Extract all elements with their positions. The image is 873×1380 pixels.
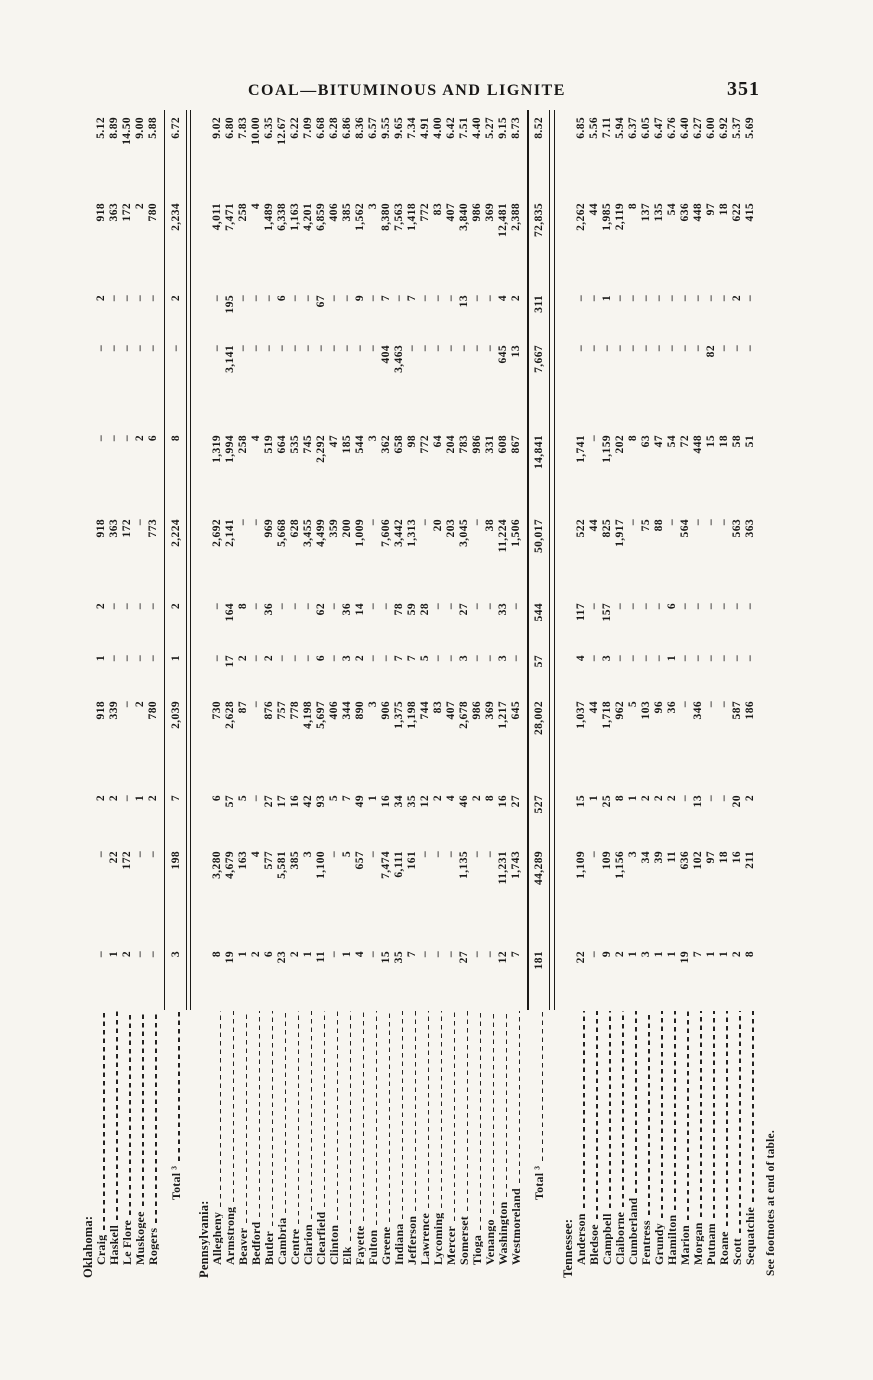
cell: – (276, 648, 288, 694)
cell: 2,141 (224, 512, 236, 596)
cell: – (679, 648, 691, 694)
cell: 102 (692, 844, 704, 944)
row-stub: Butler (263, 1008, 275, 1278)
table-row: Muskogee––12–––2––29.00 (133, 106, 146, 1278)
cell: 780 (147, 196, 159, 288)
cell: – (276, 596, 288, 648)
cell: – (484, 596, 496, 648)
cell: 137 (640, 196, 652, 288)
cell: 34 (393, 788, 405, 844)
cell: – (121, 694, 133, 788)
cell: 4 (250, 196, 262, 288)
cell: 1,506 (510, 512, 522, 596)
cell: 25 (601, 788, 613, 844)
table-row: Anderson221,109151,03741175221,741––2,26… (574, 106, 587, 1278)
leader-line (142, 1011, 144, 1206)
leader-line (467, 1011, 469, 1211)
cell: 9.55 (380, 110, 392, 196)
cell: 4.40 (471, 110, 483, 196)
cell: – (419, 512, 431, 596)
cell: 645 (497, 338, 509, 428)
cell: 50,017 (533, 512, 545, 596)
cell: 346 (692, 694, 704, 788)
cell: – (666, 288, 678, 338)
cell: 164 (224, 596, 236, 648)
cell: 19 (679, 944, 691, 1008)
cell: 918 (95, 196, 107, 288)
cell: 6.68 (315, 110, 327, 196)
cell: 103 (640, 694, 652, 788)
cell: 2 (289, 944, 301, 1008)
cell: 1,743 (510, 844, 522, 944)
table-row: Fayette4657498902141,009544–91,5628.36 (353, 106, 366, 1278)
cell: – (679, 694, 691, 788)
row-stub: Haskell (108, 1008, 120, 1278)
table-row: Armstrong194,679572,628171642,1411,9943,… (223, 106, 236, 1278)
cell: – (380, 596, 392, 648)
cell: 407 (445, 196, 457, 288)
cell: – (211, 288, 223, 338)
cell: – (718, 694, 730, 788)
cell: 35 (406, 788, 418, 844)
cell: 3 (170, 944, 182, 1008)
cell: 3 (458, 648, 470, 694)
cell: 744 (419, 694, 431, 788)
cell: 8 (170, 428, 182, 512)
cell: 27 (263, 788, 275, 844)
cell: 198 (170, 844, 182, 944)
cell: 7 (406, 648, 418, 694)
cell: 11 (666, 844, 678, 944)
table-row: Westmoreland71,74327645––1,5068671322,38… (509, 106, 522, 1278)
row-stub: Fayette (354, 1008, 366, 1278)
cell: – (108, 596, 120, 648)
cell: 87 (237, 694, 249, 788)
row-label: Claiborne (614, 1212, 626, 1278)
cell: 563 (731, 512, 743, 596)
row-stub: Mercer (445, 1008, 457, 1278)
cell: 6.85 (575, 110, 587, 196)
cell: – (134, 944, 146, 1008)
cell: 962 (614, 694, 626, 788)
table-row: Haskell1222339––363–––3638.89 (107, 106, 120, 1278)
cell: 5 (341, 844, 353, 944)
leader-line (428, 1011, 430, 1208)
cell: 2 (744, 788, 756, 844)
cell: – (640, 596, 652, 648)
cell: – (237, 338, 249, 428)
cell: – (147, 648, 159, 694)
cell: – (121, 648, 133, 694)
cell: 664 (276, 428, 288, 512)
cell: 6 (211, 788, 223, 844)
cell: 8 (744, 944, 756, 1008)
cell: – (588, 648, 600, 694)
cell: – (627, 512, 639, 596)
row-stub: Fentress (640, 1008, 652, 1278)
cell: 72,835 (533, 196, 545, 288)
cell: 47 (328, 428, 340, 512)
table-row: Cambria235,58117757––5,668664–66,33812.6… (275, 106, 288, 1278)
leader-line (415, 1011, 417, 1211)
cell: 15 (575, 788, 587, 844)
cell: – (134, 844, 146, 944)
leader-line (648, 1011, 650, 1215)
running-title: COAL—BITUMINOUS AND LIGNITE (248, 82, 566, 100)
cell: 7,563 (393, 196, 405, 288)
cell: 7.11 (601, 110, 613, 196)
cell: 67 (315, 288, 327, 338)
cell: 890 (354, 694, 366, 788)
cell: 8.89 (108, 110, 120, 196)
row-label: Lycoming (432, 1213, 444, 1278)
cell: 7,474 (380, 844, 392, 944)
cell: 11 (315, 944, 327, 1008)
cell: 6.80 (224, 110, 236, 196)
leader-line (350, 1011, 352, 1241)
cell: 730 (211, 694, 223, 788)
cell: 57 (533, 648, 545, 694)
cell: 9 (354, 288, 366, 338)
cell: – (640, 338, 652, 428)
cell: 6.00 (705, 110, 717, 196)
cell: – (302, 288, 314, 338)
cell: – (328, 338, 340, 428)
cell: 42 (302, 788, 314, 844)
cell: 8.36 (354, 110, 366, 196)
page-number: 351 (727, 78, 760, 101)
cell: 1,198 (406, 694, 418, 788)
leader-line (700, 1011, 702, 1217)
cell: 3 (367, 428, 379, 512)
table-row: Bedford24–––––4––410.00 (249, 106, 262, 1278)
cell: 6,111 (393, 844, 405, 944)
cell: 1 (588, 788, 600, 844)
cell: – (367, 944, 379, 1008)
cell: 18 (718, 844, 730, 944)
row-label: Cumberland (627, 1198, 639, 1278)
table-row: Indiana356,111341,3757783,4426583,463–7,… (392, 106, 405, 1278)
cell: – (419, 844, 431, 944)
cell: 203 (445, 512, 457, 596)
cell: 72 (679, 428, 691, 512)
table-row: Elk157344336200185––3856.86 (340, 106, 353, 1278)
cell: – (588, 596, 600, 648)
cell: 6.40 (679, 110, 691, 196)
cell: 4 (250, 428, 262, 512)
cell: 6.47 (653, 110, 665, 196)
row-stub: Venango (484, 1008, 496, 1278)
cell: – (134, 288, 146, 338)
cell: – (367, 596, 379, 648)
cell: 12.67 (276, 110, 288, 196)
cell: – (432, 596, 444, 648)
cell: – (432, 844, 444, 944)
cell: 2 (134, 694, 146, 788)
cell: 33 (497, 596, 509, 648)
row-label: Scott (731, 1238, 743, 1278)
cell: – (718, 338, 730, 428)
cell: 1 (134, 788, 146, 844)
cell: – (471, 288, 483, 338)
cell: 7.34 (406, 110, 418, 196)
cell: – (211, 596, 223, 648)
leader-line (752, 1011, 754, 1202)
cell: – (575, 338, 587, 428)
row-label: Elk (341, 1246, 353, 1278)
cell: – (588, 288, 600, 338)
leader-line (363, 1011, 365, 1221)
cell: – (250, 512, 262, 596)
table-row: Marion19636––––56472––6366.40 (678, 106, 691, 1278)
cell: – (367, 512, 379, 596)
row-label: Venango (484, 1219, 496, 1278)
cell: – (445, 338, 457, 428)
cell: 1 (170, 648, 182, 694)
cell: – (380, 648, 392, 694)
cell: – (419, 944, 431, 1008)
cell: 20 (731, 788, 743, 844)
cell: – (289, 338, 301, 428)
cell: 2 (250, 944, 262, 1008)
double-rule (186, 110, 191, 1010)
cell: 57 (224, 788, 236, 844)
row-stub: Le Flore (121, 1008, 133, 1278)
cell: – (731, 596, 743, 648)
cell: 12,481 (497, 196, 509, 288)
cell: 1,985 (601, 196, 613, 288)
cell: 93 (315, 788, 327, 844)
cell: – (108, 428, 120, 512)
cell: 186 (744, 694, 756, 788)
cell: 4.91 (419, 110, 431, 196)
cell: – (289, 648, 301, 694)
cell: – (744, 338, 756, 428)
leader-line (609, 1011, 611, 1208)
cell: 5.37 (731, 110, 743, 196)
cell: 6 (666, 596, 678, 648)
total-row: Total ³18144,28952728,0025754450,01714,8… (531, 106, 545, 1278)
cell: 369 (484, 694, 496, 788)
row-stub: Rogers (147, 1008, 159, 1278)
cell: – (640, 288, 652, 338)
row-stub: Hamilton (666, 1008, 678, 1278)
cell: 36 (341, 596, 353, 648)
cell: – (276, 338, 288, 428)
cell: 448 (692, 428, 704, 512)
cell: – (614, 596, 626, 648)
cell: – (471, 844, 483, 944)
row-label: Tioga (471, 1235, 483, 1278)
cell: 2 (510, 288, 522, 338)
cell: – (328, 288, 340, 338)
cell: 28,002 (533, 694, 545, 788)
cell: 4,499 (315, 512, 327, 596)
cell: – (601, 338, 613, 428)
cell: 331 (484, 428, 496, 512)
cell: 78 (393, 596, 405, 648)
state-header-label: Oklahoma: (82, 1216, 94, 1278)
cell: 15 (380, 944, 392, 1008)
leader-line (402, 1011, 404, 1219)
cell: – (666, 338, 678, 428)
cell: 577 (263, 844, 275, 944)
cell: 2,224 (170, 512, 182, 596)
cell: 363 (108, 196, 120, 288)
leader-line (376, 1011, 378, 1225)
cell: 59 (406, 596, 418, 648)
table-row: Craig––291812918––29185.12 (94, 106, 107, 1278)
cell: – (484, 338, 496, 428)
cell: 6 (276, 288, 288, 338)
table-row: Lawrence––12744528–772––7724.91 (418, 106, 431, 1278)
cell: 1 (627, 944, 639, 1008)
cell: 6.27 (692, 110, 704, 196)
cell: 6.92 (718, 110, 730, 196)
cell: 1 (705, 944, 717, 1008)
row-stub: Tennessee: (562, 1008, 574, 1278)
cell: – (484, 844, 496, 944)
leader-line (480, 1011, 482, 1230)
cell: 1,159 (601, 428, 613, 512)
cell: 39 (653, 844, 665, 944)
cell: 1,100 (315, 844, 327, 944)
cell: – (95, 844, 107, 944)
cell: 1,375 (393, 694, 405, 788)
cell: 6.42 (445, 110, 457, 196)
cell: 23 (276, 944, 288, 1008)
row-label: Haskell (108, 1225, 120, 1278)
cell: 27 (458, 944, 470, 1008)
cell: – (393, 288, 405, 338)
cell: – (432, 944, 444, 1008)
cell: 97 (705, 196, 717, 288)
cell: 1 (718, 944, 730, 1008)
row-label: Fulton (367, 1230, 379, 1278)
cell: 16 (731, 844, 743, 944)
cell: 9.02 (211, 110, 223, 196)
cell: 8 (614, 788, 626, 844)
leader-line (596, 1011, 598, 1219)
cell: 1,418 (406, 196, 418, 288)
row-label: Sequatchie (744, 1207, 756, 1278)
cell: 200 (341, 512, 353, 596)
cell: 46 (458, 788, 470, 844)
row-label: Butler (263, 1231, 275, 1278)
cell: 3,280 (211, 844, 223, 944)
cell: 8 (627, 428, 639, 512)
cell: 3 (497, 648, 509, 694)
cell: 564 (679, 512, 691, 596)
cell: 867 (510, 428, 522, 512)
cell: 362 (380, 428, 392, 512)
cell: 986 (471, 196, 483, 288)
cell: – (731, 648, 743, 694)
cell: 2,262 (575, 196, 587, 288)
cell: 783 (458, 428, 470, 512)
cell: 778 (289, 694, 301, 788)
cell: 62 (315, 596, 327, 648)
cell: 622 (731, 196, 743, 288)
cell: 8 (627, 196, 639, 288)
cell: 36 (263, 596, 275, 648)
cell: – (471, 596, 483, 648)
cell: 1,313 (406, 512, 418, 596)
cell: 97 (705, 844, 717, 944)
cell: 2 (134, 196, 146, 288)
leader-line (272, 1011, 274, 1226)
cell: 415 (744, 196, 756, 288)
cell: 202 (614, 428, 626, 512)
table-row: Centre238516778––628535––1,1636.22 (288, 106, 301, 1278)
cell: 195 (224, 288, 236, 338)
cell: 918 (95, 694, 107, 788)
cell: – (367, 338, 379, 428)
row-label: Cambria (276, 1218, 288, 1278)
row-stub: Scott (731, 1008, 743, 1278)
cell: – (250, 788, 262, 844)
cell: – (108, 288, 120, 338)
row-label: Fentress (640, 1220, 652, 1278)
cell: 369 (484, 196, 496, 288)
cell: 4 (250, 844, 262, 944)
row-stub: Lycoming (432, 1008, 444, 1278)
cell: 2 (95, 596, 107, 648)
row-label: Le Flore (121, 1220, 133, 1278)
cell: 51 (744, 428, 756, 512)
cell: – (705, 288, 717, 338)
cell: 14.50 (121, 110, 133, 196)
row-stub: Fulton (367, 1008, 379, 1278)
cell: 772 (419, 196, 431, 288)
row-label: Clarion (302, 1224, 314, 1278)
cell: – (510, 596, 522, 648)
cell: 2 (432, 788, 444, 844)
cell: 6.86 (341, 110, 353, 196)
cell: 1,741 (575, 428, 587, 512)
cell: – (705, 788, 717, 844)
cell: – (731, 338, 743, 428)
cell: – (121, 596, 133, 648)
cell: – (614, 648, 626, 694)
cell: 5.69 (744, 110, 756, 196)
leader-line (726, 1011, 728, 1226)
cell: 1 (302, 944, 314, 1008)
leader-line (493, 1011, 495, 1214)
state-header-row: Pennsylvania: (196, 106, 210, 1278)
cell: 6.37 (627, 110, 639, 196)
cell: – (134, 338, 146, 428)
cell: – (121, 338, 133, 428)
cell: – (432, 288, 444, 338)
cell: – (315, 338, 327, 428)
cell: – (471, 944, 483, 1008)
cell: 7,471 (224, 196, 236, 288)
cell: 4,679 (224, 844, 236, 944)
cell: 36 (666, 694, 678, 788)
cell: 3 (341, 648, 353, 694)
cell: 13 (510, 338, 522, 428)
cell: 363 (108, 512, 120, 596)
cell: 7 (406, 288, 418, 338)
cell: – (95, 338, 107, 428)
cell: 185 (341, 428, 353, 512)
row-label: Fayette (354, 1226, 366, 1278)
county-production-table: Oklahoma:Craig––291812918––29185.12Haske… (75, 106, 756, 1278)
cell: 1 (627, 788, 639, 844)
cell: 527 (533, 788, 545, 844)
leader-line (622, 1011, 624, 1207)
